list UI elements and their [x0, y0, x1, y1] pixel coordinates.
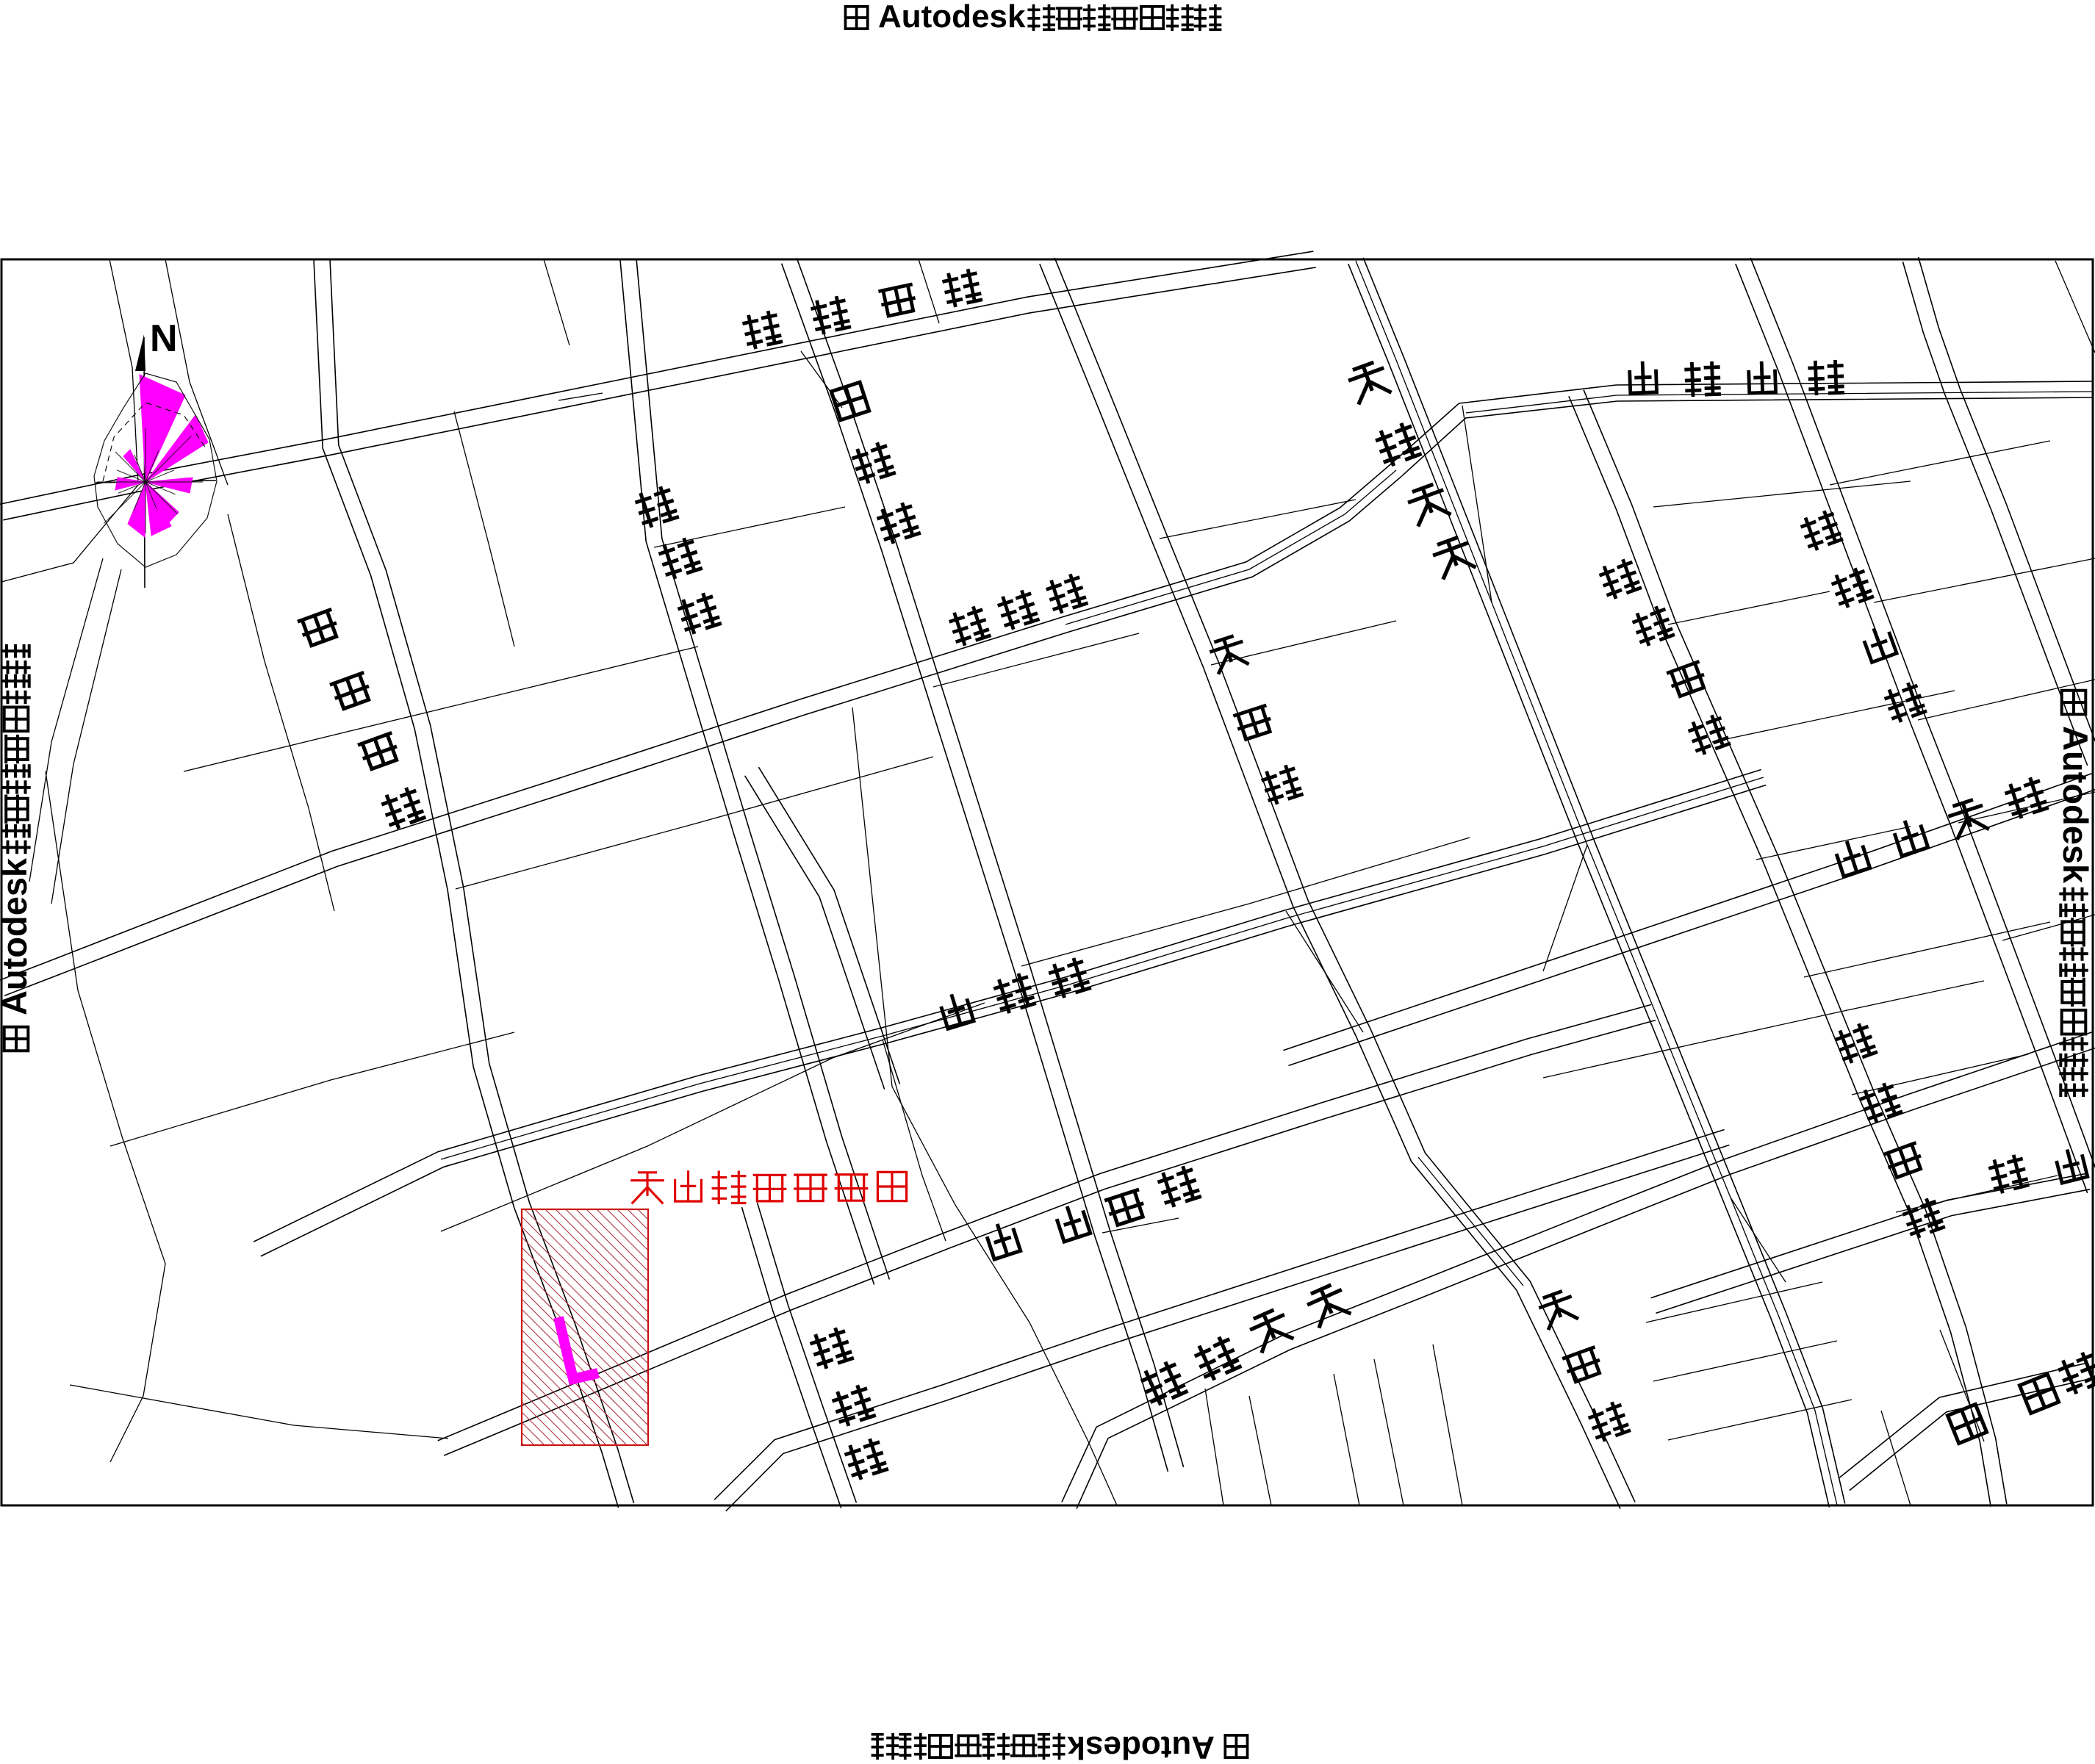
svg-text:Autodesk: Autodesk — [878, 0, 1026, 35]
svg-text:Autodesk: Autodesk — [2056, 726, 2095, 884]
svg-text:Autodesk: Autodesk — [0, 857, 34, 1015]
svg-text:Autodesk: Autodesk — [1067, 1729, 1215, 1764]
svg-text:N: N — [150, 317, 178, 360]
